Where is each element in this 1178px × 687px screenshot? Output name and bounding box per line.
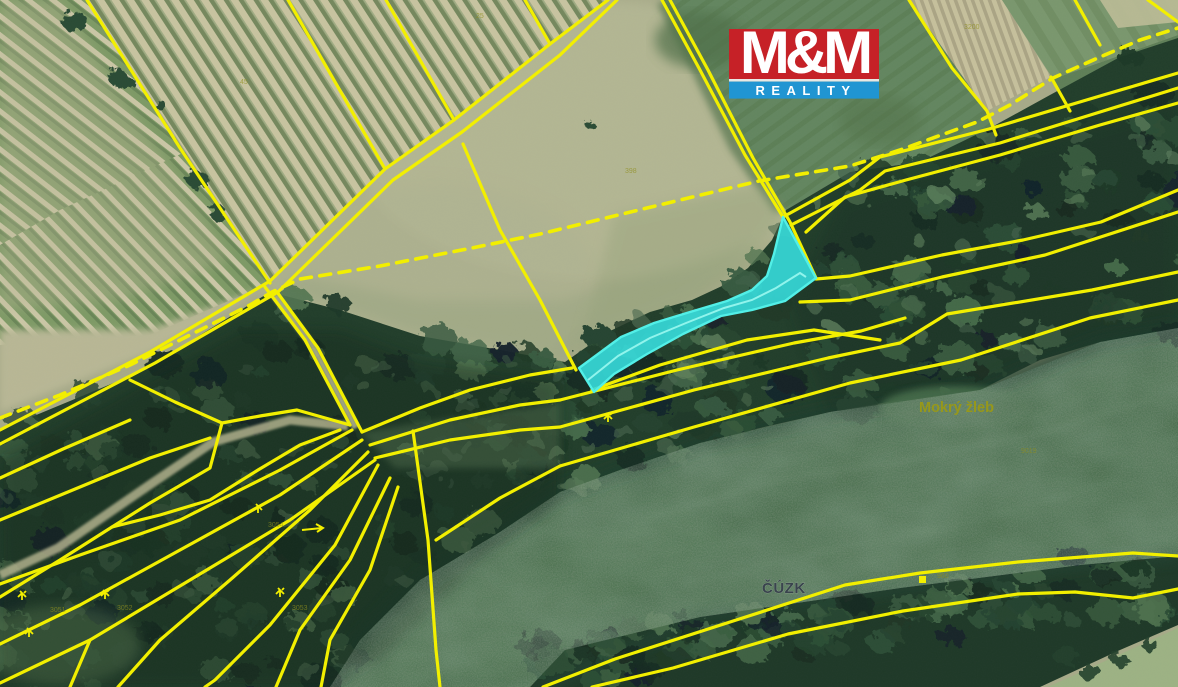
svg-text:ČÚZK: ČÚZK — [762, 579, 806, 597]
svg-text:3052: 3052 — [117, 605, 133, 612]
svg-text:3053: 3053 — [292, 605, 308, 612]
svg-text:Mokrý žleb: Mokrý žleb — [919, 400, 994, 416]
svg-text:3200: 3200 — [964, 24, 980, 31]
svg-text:25: 25 — [476, 13, 484, 20]
svg-text:M&M: M&M — [740, 19, 869, 86]
svg-text:3051: 3051 — [50, 607, 66, 614]
svg-text:3054: 3054 — [268, 522, 284, 529]
svg-text:960: 960 — [937, 573, 949, 580]
svg-text:REALITY: REALITY — [755, 83, 856, 98]
svg-text:45: 45 — [240, 79, 248, 86]
svg-text:9019: 9019 — [1021, 448, 1037, 455]
svg-text:398: 398 — [625, 168, 637, 175]
